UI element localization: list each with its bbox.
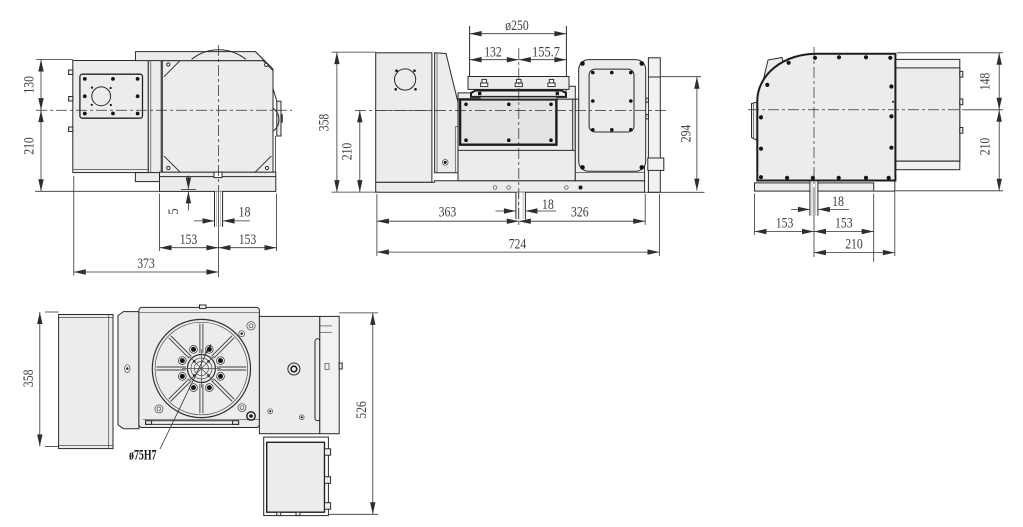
svg-text:132: 132 [484, 45, 502, 61]
svg-text:210: 210 [845, 237, 863, 253]
svg-text:724: 724 [509, 236, 527, 252]
svg-text:153: 153 [776, 216, 794, 232]
svg-text:358: 358 [21, 370, 37, 388]
svg-text:326: 326 [571, 204, 589, 220]
svg-text:5: 5 [166, 208, 182, 214]
svg-text:18: 18 [542, 197, 554, 213]
svg-text:153: 153 [180, 232, 198, 248]
svg-text:155.7: 155.7 [532, 45, 560, 61]
svg-text:526: 526 [354, 401, 370, 419]
svg-text:210: 210 [978, 138, 994, 156]
svg-text:373: 373 [137, 256, 155, 272]
svg-text:18: 18 [832, 194, 844, 210]
svg-text:ø75H7: ø75H7 [129, 448, 157, 464]
svg-text:153: 153 [835, 216, 853, 232]
svg-text:153: 153 [239, 232, 257, 248]
svg-text:210: 210 [340, 143, 356, 161]
svg-text:210: 210 [22, 137, 38, 155]
svg-text:294: 294 [679, 124, 695, 142]
svg-text:358: 358 [317, 114, 333, 132]
svg-text:363: 363 [439, 204, 457, 220]
svg-text:148: 148 [978, 73, 994, 91]
svg-text:130: 130 [22, 76, 38, 94]
svg-text:ø250: ø250 [505, 18, 529, 34]
svg-text:18: 18 [239, 205, 251, 221]
